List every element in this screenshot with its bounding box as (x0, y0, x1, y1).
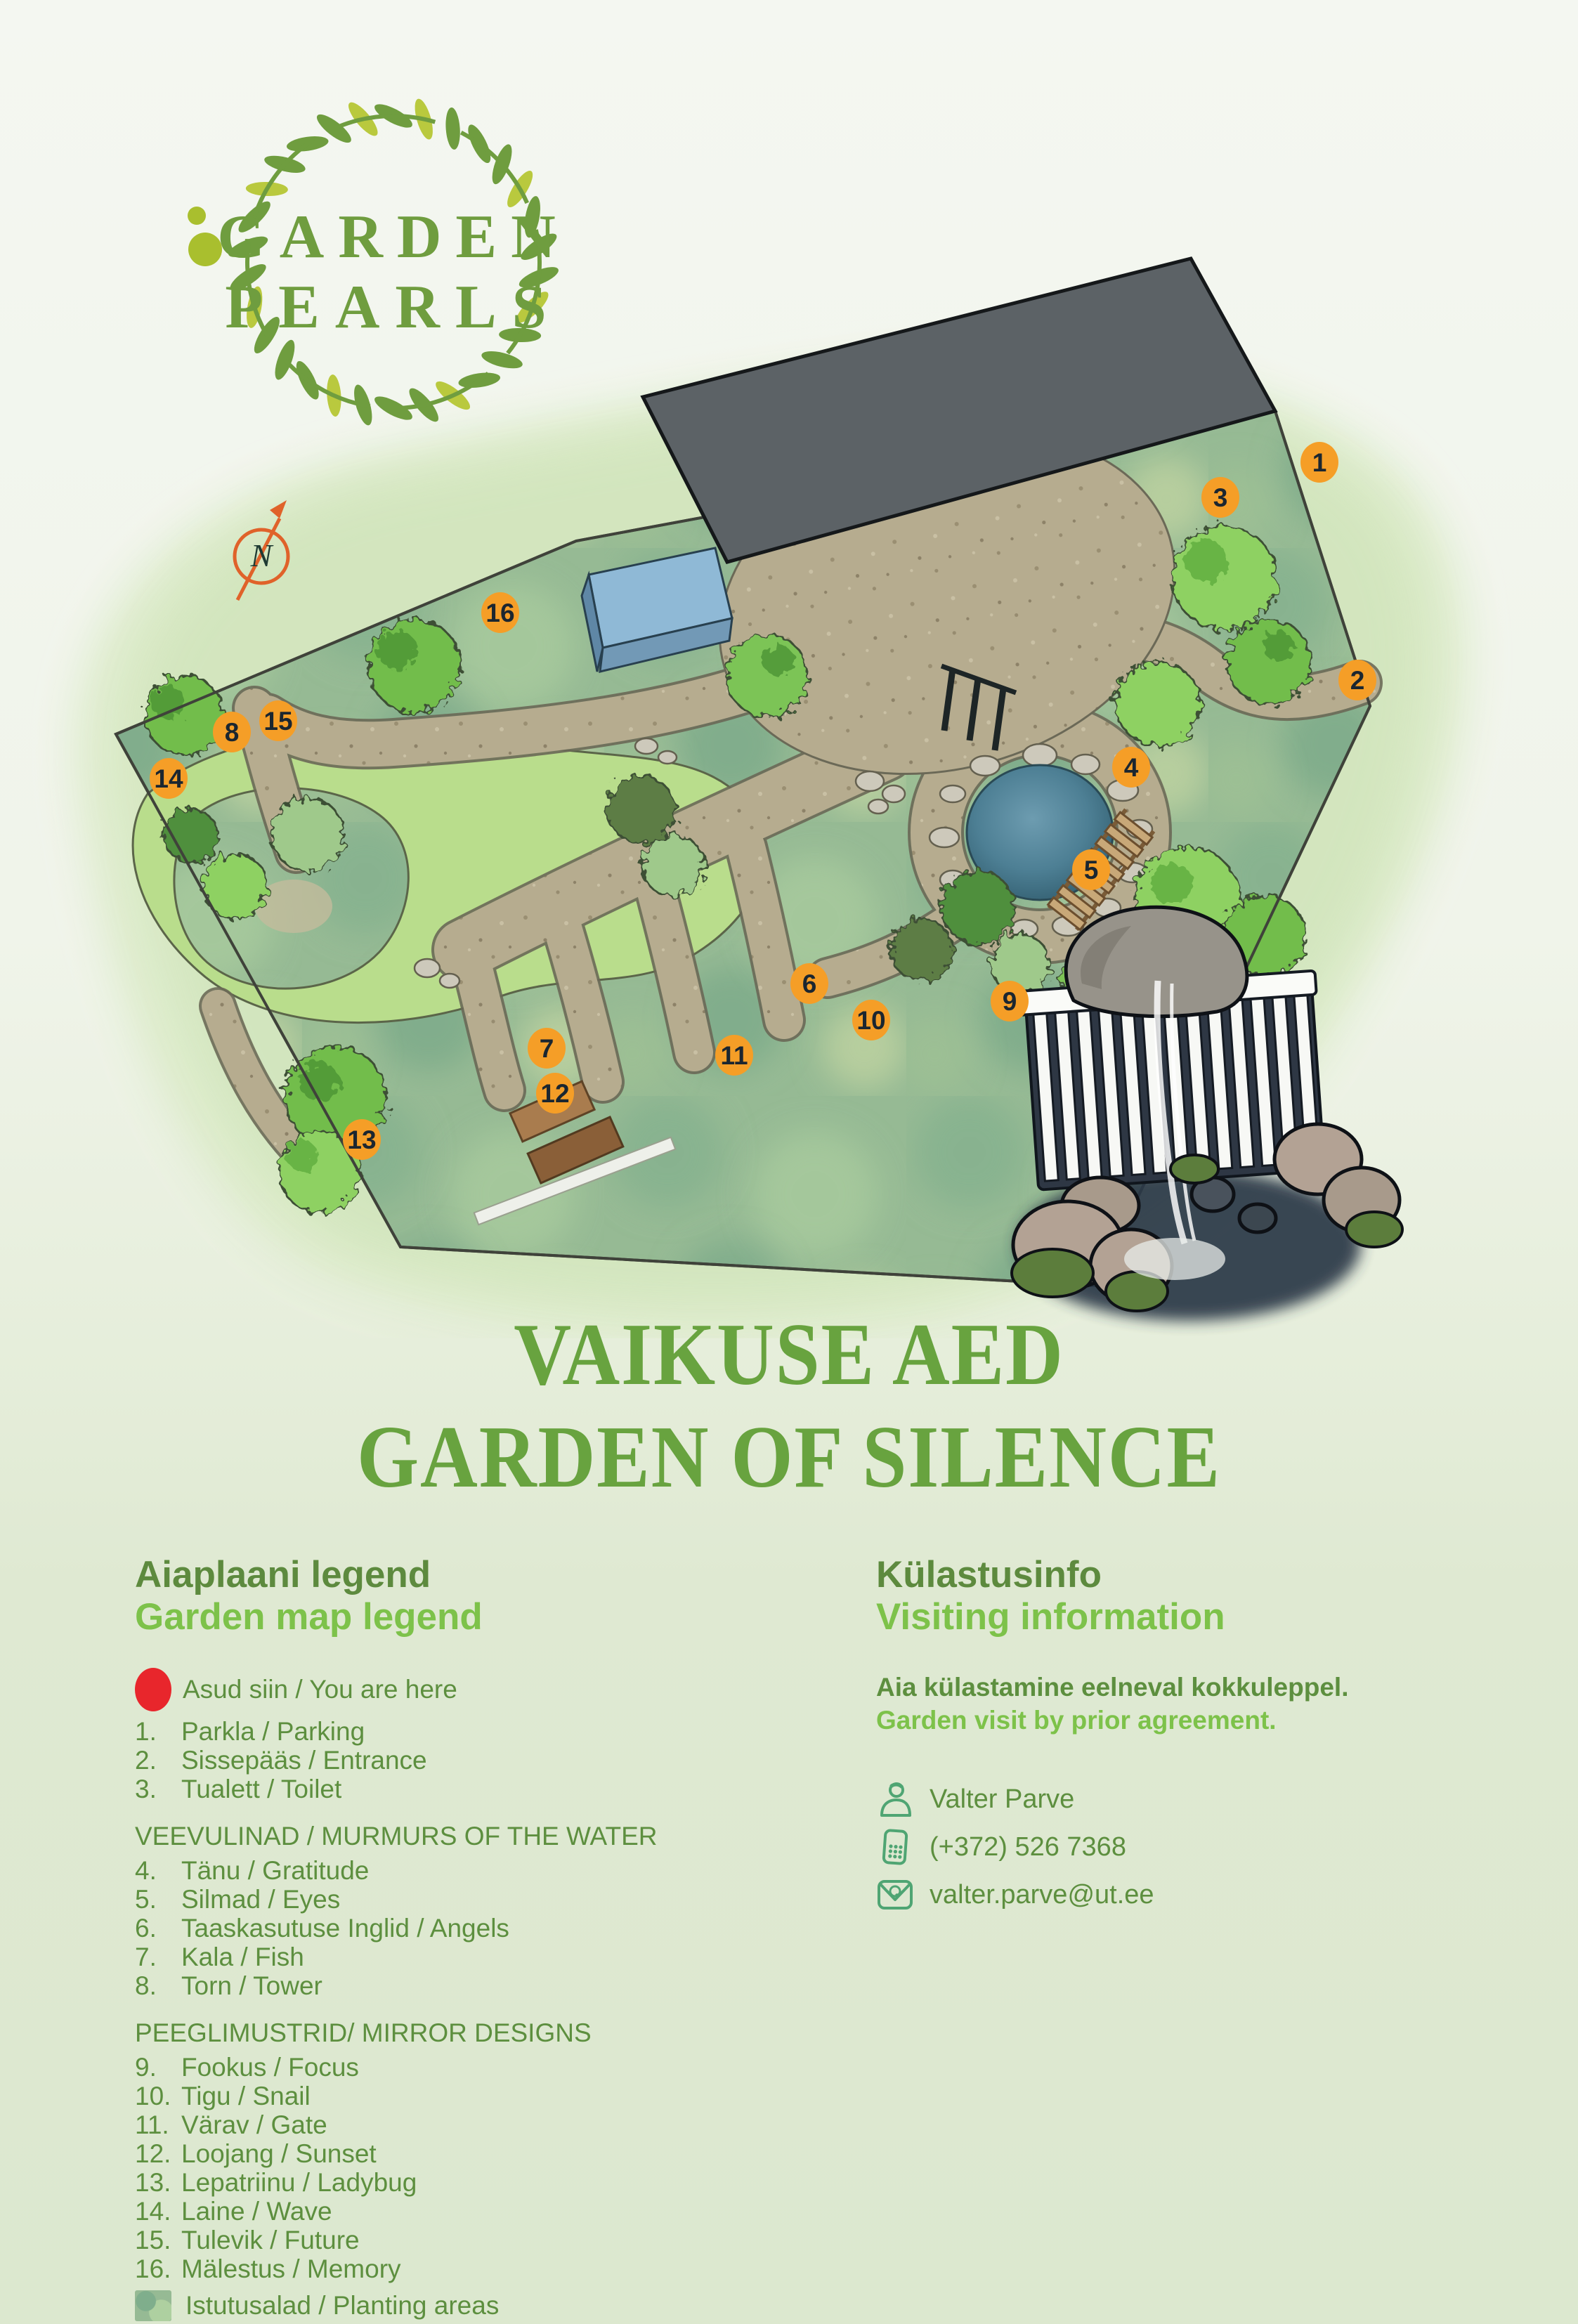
logo-word-garden: GARDEN (162, 202, 625, 273)
svg-text:6: 6 (802, 970, 817, 998)
legend-item: 7.Kala / Fish (135, 1943, 837, 1971)
svg-text:7: 7 (540, 1034, 554, 1063)
svg-text:4: 4 (1124, 753, 1139, 782)
legend-item: 11.Värav / Gate (135, 2110, 837, 2139)
waterfall-foam (1124, 1238, 1225, 1280)
legend-item-label: Silmad / Eyes (181, 1885, 340, 1914)
legend-item-number: 5. (135, 1885, 181, 1914)
legend-heading-en: Garden map legend (135, 1596, 837, 1638)
map-marker-7: 7 (528, 1028, 566, 1069)
contact-phone: (+372) 526 7368 (930, 1832, 1126, 1862)
logo-word-pearls: PEARLS (162, 272, 625, 343)
you-are-here-dot (135, 1668, 171, 1711)
map-marker-9: 9 (991, 981, 1029, 1021)
map-marker-14: 14 (150, 758, 188, 799)
legend-item-number: 6. (135, 1914, 181, 1943)
legend-item-number: 16. (135, 2254, 181, 2283)
legend-heading-et: Aiaplaani legend (135, 1554, 837, 1596)
poster-title: VAIKUSE AED GARDEN OF SILENCE (0, 1304, 1578, 1509)
legend-item: 13.Lepatriinu / Ladybug (135, 2168, 837, 2197)
legend-item: 16.Mälestus / Memory (135, 2254, 837, 2283)
contact-name: Valter Parve (930, 1784, 1074, 1815)
legend-item-number: 4. (135, 1856, 181, 1885)
legend-section: Aiaplaani legend Garden map legend Asud … (135, 1554, 837, 2321)
legend-item: 12.Loojang / Sunset (135, 2139, 837, 2168)
legend-item-number: 3. (135, 1775, 181, 1803)
legend-item-number: 11. (135, 2110, 181, 2139)
legend-item: 9.Fookus / Focus (135, 2053, 837, 2082)
legend-item-label: Laine / Wave (181, 2197, 332, 2226)
svg-text:14: 14 (154, 764, 183, 793)
you-are-here-row: Asud siin / You are here (135, 1668, 837, 1711)
legend-item-number: 14. (135, 2197, 181, 2226)
legend-item-label: Tigu / Snail (181, 2082, 311, 2110)
svg-text:15: 15 (263, 707, 292, 736)
legend-item-label: Sissepääs / Entrance (181, 1746, 427, 1775)
legend-item-label: Loojang / Sunset (181, 2139, 377, 2168)
legend-group-mirror: PEEGLIMUSTRID/ MIRROR DESIGNS (135, 2018, 837, 2047)
legend-item-label: Lepatriinu / Ladybug (181, 2168, 417, 2197)
legend-item-number: 1. (135, 1717, 181, 1746)
map-marker-12: 12 (536, 1073, 574, 1114)
svg-text:8: 8 (225, 718, 240, 747)
map-marker-5: 5 (1072, 849, 1110, 890)
map-marker-3: 3 (1201, 477, 1239, 518)
legend-list-mirror: 9.Fookus / Focus10.Tigu / Snail11.Värav … (135, 2053, 837, 2283)
contact-phone-row: (+372) 526 7368 (876, 1828, 1522, 1866)
legend-item: 10.Tigu / Snail (135, 2082, 837, 2110)
svg-text:2: 2 (1350, 666, 1365, 695)
map-marker-16: 16 (481, 592, 519, 633)
legend-item-number: 13. (135, 2168, 181, 2197)
legend-item-label: Tänu / Gratitude (181, 1856, 369, 1885)
contact-name-row: Valter Parve (876, 1780, 1522, 1818)
map-marker-15: 15 (259, 700, 297, 741)
legend-item-label: Tualett / Toilet (181, 1775, 341, 1803)
title-estonian: VAIKUSE AED (79, 1304, 1499, 1406)
legend-item-label: Fookus / Focus (181, 2053, 359, 2082)
map-marker-8: 8 (213, 712, 251, 752)
planting-areas-label: Istutusalad / Planting areas (185, 2291, 499, 2320)
compass-n-label: N (250, 537, 274, 573)
legend-item-number: 8. (135, 1971, 181, 2000)
legend-item-number: 7. (135, 1943, 181, 1971)
legend-group-water: VEEVULINAD / MURMURS OF THE WATER (135, 1822, 837, 1850)
legend-item-label: Torn / Tower (181, 1971, 322, 2000)
planting-areas-swatch (135, 2290, 171, 2321)
legend-item-label: Taaskasutuse Inglid / Angels (181, 1914, 509, 1943)
svg-text:13: 13 (347, 1125, 376, 1154)
legend-item: 8.Torn / Tower (135, 1971, 837, 2000)
legend-item-number: 12. (135, 2139, 181, 2168)
phone-icon (876, 1828, 914, 1866)
legend-list-top: 1.Parkla / Parking2.Sissepääs / Entrance… (135, 1717, 837, 1803)
visiting-heading-et: Külastusinfo (876, 1554, 1522, 1596)
legend-item: 15.Tulevik / Future (135, 2226, 837, 2254)
legend-item-label: Värav / Gate (181, 2110, 327, 2139)
legend-item-number: 9. (135, 2053, 181, 2082)
poster-page: N (0, 0, 1578, 2324)
legend-item-number: 15. (135, 2226, 181, 2254)
planting-areas-row: Istutusalad / Planting areas (135, 2290, 837, 2321)
svg-text:11: 11 (720, 1041, 748, 1070)
legend-item: 2.Sissepääs / Entrance (135, 1746, 837, 1775)
legend-item-label: Kala / Fish (181, 1943, 304, 1971)
legend-item-label: Mälestus / Memory (181, 2254, 401, 2283)
map-marker-13: 13 (343, 1119, 381, 1160)
visiting-note-et: Aia külastamine eelneval kokkuleppel. (876, 1671, 1522, 1704)
legend-item: 6.Taaskasutuse Inglid / Angels (135, 1914, 837, 1943)
svg-text:12: 12 (540, 1079, 569, 1108)
contact-email: valter.parve@ut.ee (930, 1880, 1154, 1910)
svg-text:16: 16 (485, 599, 514, 627)
email-icon (876, 1876, 914, 1914)
visiting-note-en: Garden visit by prior agreement. (876, 1704, 1522, 1737)
garden-pearls-logo: GARDEN PEARLS (162, 39, 625, 530)
svg-text:1: 1 (1312, 448, 1327, 477)
person-icon (876, 1780, 914, 1818)
legend-list-water: 4.Tänu / Gratitude5.Silmad / Eyes6.Taask… (135, 1856, 837, 2000)
visiting-section: Külastusinfo Visiting information Aia kü… (876, 1554, 1522, 1914)
map-marker-11: 11 (715, 1035, 753, 1076)
visiting-heading-en: Visiting information (876, 1596, 1522, 1638)
svg-text:3: 3 (1213, 483, 1228, 512)
you-are-here-label: Asud siin / You are here (183, 1675, 457, 1704)
contact-block: Valter Parve (+372) 526 7368 (876, 1780, 1522, 1914)
svg-text:10: 10 (856, 1006, 885, 1035)
map-marker-6: 6 (790, 963, 828, 1004)
legend-item-number: 2. (135, 1746, 181, 1775)
svg-text:9: 9 (1003, 987, 1017, 1016)
svg-text:5: 5 (1084, 856, 1099, 884)
legend-item: 5.Silmad / Eyes (135, 1885, 837, 1914)
legend-item: 14.Laine / Wave (135, 2197, 837, 2226)
legend-item-label: Tulevik / Future (181, 2226, 360, 2254)
map-marker-1: 1 (1300, 442, 1338, 483)
legend-item-number: 10. (135, 2082, 181, 2110)
legend-item: 4.Tänu / Gratitude (135, 1856, 837, 1885)
map-marker-4: 4 (1112, 747, 1150, 788)
title-english: GARDEN OF SILENCE (79, 1406, 1499, 1509)
contact-email-row: valter.parve@ut.ee (876, 1876, 1522, 1914)
legend-item: 1.Parkla / Parking (135, 1717, 837, 1746)
map-marker-10: 10 (852, 1000, 890, 1040)
legend-item-label: Parkla / Parking (181, 1717, 365, 1746)
map-marker-2: 2 (1338, 660, 1376, 700)
legend-item: 3.Tualett / Toilet (135, 1775, 837, 1803)
